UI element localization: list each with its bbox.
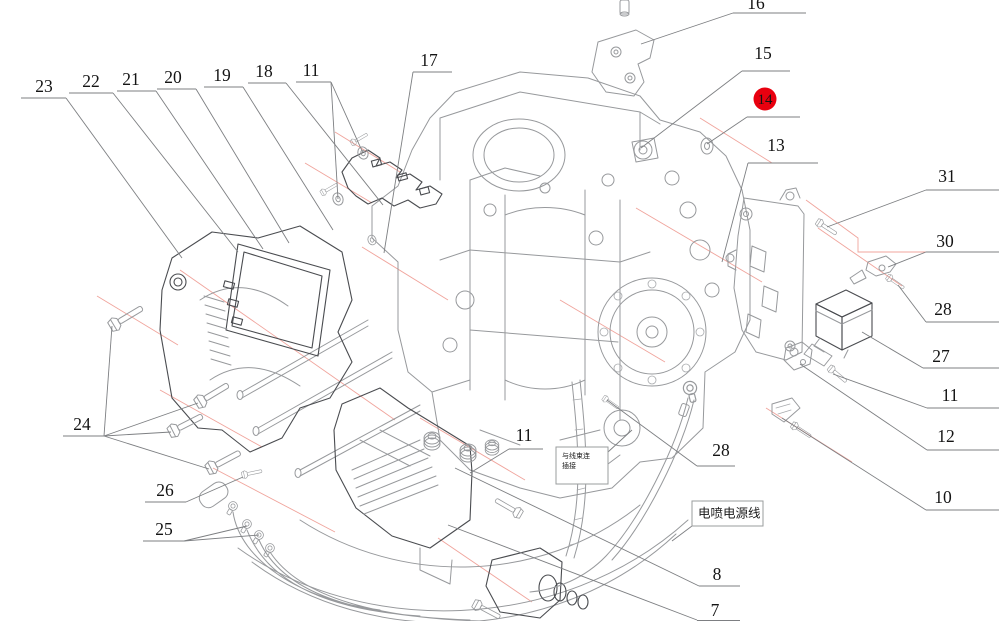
callout-c20: 20 [157, 67, 289, 243]
callout-c28r: 28 [898, 285, 999, 322]
callout-c13: 13 [722, 135, 818, 262]
callout-c12: 12 [800, 364, 999, 450]
callout-number: 31 [938, 166, 956, 186]
callout-number: 23 [35, 76, 53, 96]
callout-number: 15 [754, 43, 772, 63]
callout-number: 11 [942, 385, 959, 405]
note-efi-power: 电喷电源线 [672, 501, 763, 541]
callout-number: 10 [934, 487, 952, 507]
exploded-diagram-canvas: 2322212019181117161514133130282711121087… [0, 0, 1000, 621]
callout-number: 28 [934, 299, 952, 319]
note-text: 电喷电源线 [698, 506, 761, 521]
callout-c23: 23 [21, 76, 182, 258]
callout-c16: 16 [641, 0, 806, 44]
callout-c28c: 28 [607, 400, 735, 466]
callout-number: 28 [712, 440, 730, 460]
callout-number: 25 [155, 519, 173, 539]
callout-c26: 26 [145, 477, 243, 502]
callout-c18: 18 [248, 61, 383, 205]
callout-c7: 7 [448, 525, 740, 621]
callout-number: 17 [420, 50, 438, 70]
callout-c27: 27 [862, 332, 999, 368]
callout-number: 16 [747, 0, 765, 13]
callout-number: 26 [156, 480, 174, 500]
callout-c17: 17 [384, 50, 452, 253]
note-harness-connect: 与线束连插接 [556, 430, 632, 484]
callout-number: 27 [932, 346, 950, 366]
callout-c8: 8 [455, 468, 740, 586]
callout-number: 22 [82, 71, 100, 91]
callout-number: 24 [73, 414, 91, 434]
callout-number: 12 [937, 426, 955, 446]
callout-number: 7 [711, 600, 720, 620]
callout-number: 13 [767, 135, 785, 155]
callout-c22: 22 [69, 71, 238, 252]
callout-c24: 24 [63, 326, 209, 469]
callout-number: 18 [255, 61, 273, 81]
callout-number: 30 [936, 231, 954, 251]
callout-number: 11 [516, 425, 533, 445]
callout-c21: 21 [117, 69, 263, 249]
callout-number: 8 [713, 564, 722, 584]
callout-c31: 31 [827, 166, 999, 227]
callout-number: 14 [758, 92, 774, 108]
callout-c10: 10 [782, 418, 999, 510]
callout-c30: 30 [888, 231, 999, 267]
callout-c11a: 11 [296, 60, 363, 199]
callout-number: 21 [122, 69, 140, 89]
callout-layer: 2322212019181117161514133130282711121087… [0, 0, 1000, 621]
note-text: 与线束连 [562, 451, 590, 460]
callout-c11c: 11 [470, 425, 543, 473]
callout-number: 11 [303, 60, 320, 80]
note-text: 插接 [562, 461, 576, 470]
callout-c19: 19 [204, 65, 333, 230]
callout-number: 19 [213, 65, 231, 85]
callout-c14: 14 [707, 88, 800, 145]
callout-c25: 25 [143, 519, 259, 541]
callout-number: 20 [164, 67, 182, 87]
